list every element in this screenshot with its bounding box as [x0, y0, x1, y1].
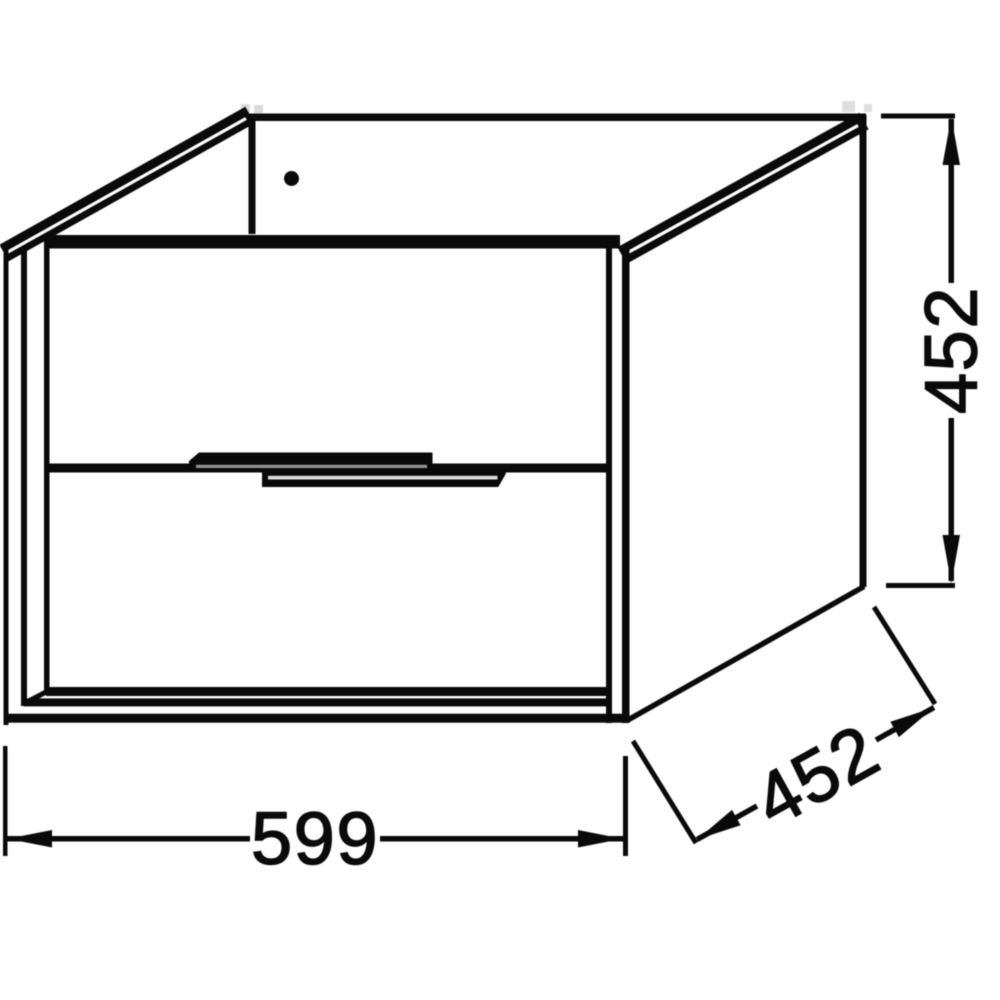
svg-text:599: 599	[251, 797, 379, 880]
svg-text:452: 452	[910, 286, 993, 414]
